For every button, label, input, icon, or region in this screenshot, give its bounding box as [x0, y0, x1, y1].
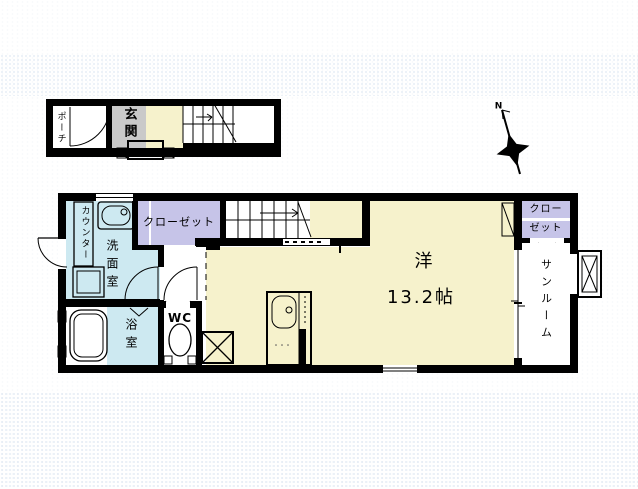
vestibule-wall-upper	[158, 245, 164, 267]
compass-north-label: N	[495, 103, 504, 112]
main-room-area	[206, 247, 514, 365]
floor1-bottom-wall-right	[183, 143, 281, 157]
sunroom-window-bay	[570, 251, 601, 297]
stair-nook-area	[310, 201, 362, 238]
floorplan-svg	[0, 0, 638, 489]
floorplan-canvas: ポーチ 玄関 N カウンター 洗面室 クローゼット 浴室 WC 洋 13.2帖 …	[0, 0, 638, 489]
porch-label: ポーチ	[56, 112, 65, 145]
room-name-label: 洋	[415, 253, 434, 271]
floor1-plan	[46, 99, 281, 159]
wc-label: WC	[168, 312, 192, 324]
door-stop-tick	[339, 246, 341, 253]
entry-doorway-gap	[58, 239, 66, 269]
closet-right-label-1: クロー	[530, 205, 563, 215]
compass-rose	[497, 110, 530, 174]
closet-right-label-2: ゼット	[530, 224, 563, 234]
washroom-bath-wall	[66, 299, 160, 307]
sunroom-label: サンルーム	[541, 259, 552, 344]
entrance-label: 玄関	[123, 107, 136, 141]
counter-label: カウンター	[80, 206, 89, 261]
compass-star	[497, 134, 530, 167]
washroom-label: 洗面室	[106, 239, 118, 293]
stairs-2f	[226, 201, 311, 238]
closet-left-wall-l	[132, 201, 138, 245]
closet-right-divider	[522, 218, 570, 221]
floor2-plan	[38, 193, 601, 373]
bottom-wall-window	[383, 365, 417, 373]
bath-label: 浴室	[125, 318, 137, 354]
vestibule-area	[164, 247, 206, 302]
porch-genkan-wall	[106, 106, 112, 148]
closet-left-label: クローゼット	[143, 217, 215, 228]
room-closet-wall	[514, 201, 522, 245]
room-size-label: 13.2帖	[387, 289, 455, 307]
main-room-area-upper	[370, 201, 514, 247]
